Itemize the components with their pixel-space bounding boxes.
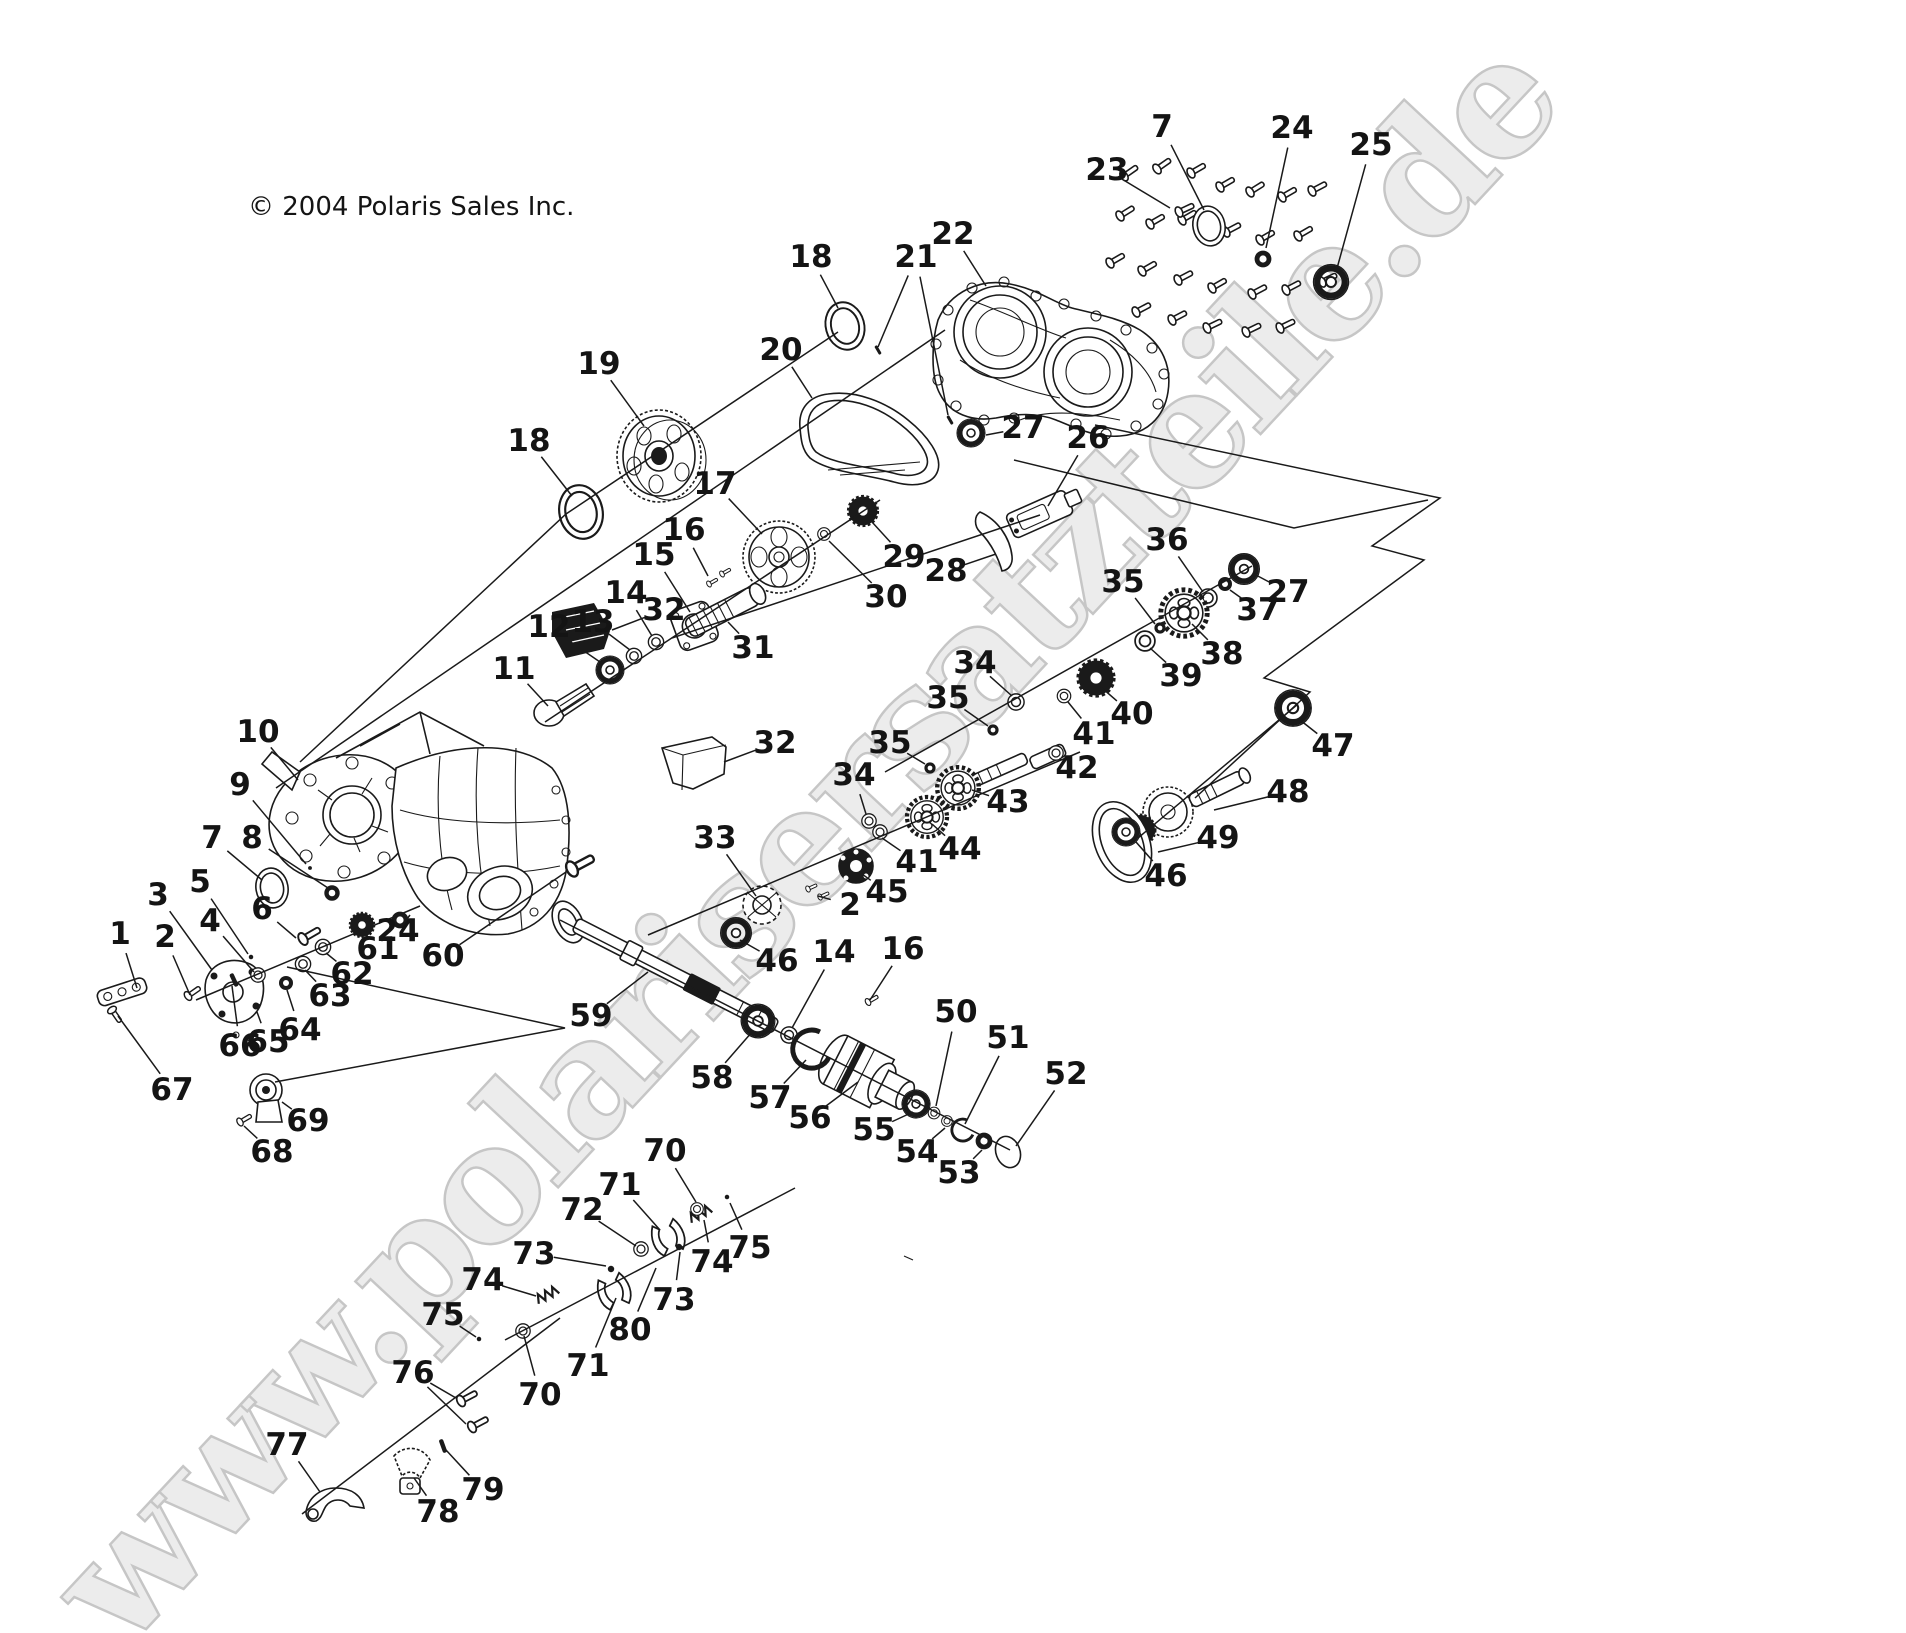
copyright-text: © 2004 Polaris Sales Inc. bbox=[248, 192, 574, 222]
label-leader-73 bbox=[554, 1257, 606, 1266]
dot-part bbox=[477, 1337, 481, 1341]
label-leader-74 bbox=[704, 1220, 708, 1242]
part-label-78: 78 bbox=[416, 1494, 459, 1530]
part-label-46: 46 bbox=[755, 943, 798, 979]
label-leader-16 bbox=[693, 548, 708, 576]
part-label-75: 75 bbox=[421, 1297, 464, 1333]
part-label-70: 70 bbox=[643, 1133, 686, 1169]
washer-part bbox=[691, 1203, 704, 1216]
gearsolid-part bbox=[1079, 661, 1114, 696]
part-label-18: 18 bbox=[789, 239, 832, 275]
part-label-16: 16 bbox=[662, 512, 705, 548]
part-label-53: 53 bbox=[937, 1155, 980, 1191]
dot-part bbox=[608, 1266, 614, 1272]
washer-part bbox=[634, 1242, 648, 1256]
part-label-35: 35 bbox=[868, 725, 911, 761]
part-label-32: 32 bbox=[753, 725, 796, 761]
part-label-58: 58 bbox=[690, 1060, 733, 1096]
label-leader-67 bbox=[118, 1016, 160, 1074]
seal-part bbox=[554, 481, 607, 543]
label-leader-51 bbox=[965, 1056, 999, 1124]
part-label-7: 7 bbox=[201, 820, 223, 856]
diagram-line bbox=[1138, 704, 1298, 838]
part-label-56: 56 bbox=[788, 1100, 831, 1136]
pin-part bbox=[946, 415, 954, 425]
label-leader-16 bbox=[870, 966, 892, 1000]
label-leader-70 bbox=[675, 1168, 696, 1202]
part-label-7: 7 bbox=[1151, 109, 1173, 145]
label-leader-2 bbox=[173, 955, 190, 995]
part-label-51: 51 bbox=[986, 1020, 1029, 1056]
part-label-79: 79 bbox=[461, 1472, 504, 1508]
part-label-57: 57 bbox=[748, 1080, 791, 1116]
washer-part bbox=[648, 634, 663, 649]
nut-part bbox=[1154, 622, 1165, 633]
part-label-54: 54 bbox=[895, 1134, 938, 1170]
screw-part bbox=[864, 993, 880, 1006]
label-leader-30 bbox=[829, 541, 872, 583]
bolt-11-drawing bbox=[534, 684, 594, 726]
screw-part bbox=[455, 1387, 479, 1408]
part-label-52: 52 bbox=[1044, 1056, 1087, 1092]
screw-part bbox=[1214, 174, 1236, 193]
part-label-76: 76 bbox=[391, 1355, 434, 1391]
nut-part bbox=[924, 762, 935, 773]
part-label-11: 11 bbox=[492, 651, 535, 687]
part-label-36: 36 bbox=[1145, 522, 1188, 558]
bearing-part bbox=[1229, 554, 1260, 585]
part-label-55: 55 bbox=[852, 1112, 895, 1148]
part-label-5: 5 bbox=[189, 864, 211, 900]
screw-part bbox=[1104, 250, 1126, 269]
part-label-2: 2 bbox=[839, 887, 861, 923]
part-label-74: 74 bbox=[690, 1244, 733, 1280]
part-label-41: 41 bbox=[1072, 716, 1115, 752]
bearing-part bbox=[1112, 818, 1140, 846]
dot-part bbox=[308, 866, 312, 870]
part-label-6: 6 bbox=[251, 891, 273, 927]
label-leader-73 bbox=[676, 1252, 680, 1280]
part-label-26: 26 bbox=[1066, 420, 1109, 456]
nut-part bbox=[987, 724, 998, 735]
part-label-3: 3 bbox=[147, 877, 169, 913]
label-leader-48 bbox=[1214, 797, 1269, 810]
sector-78-drawing bbox=[394, 1448, 430, 1494]
part-label-70: 70 bbox=[518, 1377, 561, 1413]
screw-part bbox=[1172, 268, 1194, 287]
bracket-1-drawing bbox=[96, 977, 148, 1008]
nut-part bbox=[279, 976, 293, 990]
screw-part bbox=[719, 566, 732, 577]
part-label-16: 16 bbox=[881, 931, 924, 967]
part-label-19: 19 bbox=[577, 346, 620, 382]
part-label-80: 80 bbox=[608, 1312, 651, 1348]
spring-part bbox=[535, 1285, 560, 1303]
label-leader-18 bbox=[541, 457, 572, 496]
part-label-27: 27 bbox=[1266, 574, 1309, 610]
screw-part bbox=[1114, 203, 1136, 222]
label-leader-19 bbox=[611, 380, 644, 426]
part-label-1: 1 bbox=[109, 916, 131, 952]
bearing-part bbox=[1314, 265, 1349, 300]
part-label-49: 49 bbox=[1196, 820, 1239, 856]
gear-17-drawing bbox=[743, 521, 815, 593]
part-label-27: 27 bbox=[1001, 410, 1044, 446]
part-label-24: 24 bbox=[376, 913, 419, 949]
label-leader-7 bbox=[1171, 145, 1204, 210]
seal-part bbox=[820, 298, 870, 354]
part-label-12: 12 bbox=[527, 609, 570, 645]
part-label-44: 44 bbox=[938, 831, 981, 867]
label-leader-20 bbox=[792, 367, 812, 398]
label-leader-50 bbox=[936, 1032, 952, 1106]
part-label-73: 73 bbox=[512, 1236, 555, 1272]
label-leader-21 bbox=[878, 275, 908, 347]
part-label-22: 22 bbox=[931, 216, 974, 252]
part-label-72: 72 bbox=[560, 1192, 603, 1228]
part-label-46: 46 bbox=[1144, 858, 1187, 894]
part-label-40: 40 bbox=[1110, 696, 1153, 732]
part-label-71: 71 bbox=[598, 1167, 641, 1203]
part-label-74: 74 bbox=[461, 1262, 504, 1298]
disc-part bbox=[991, 1133, 1024, 1171]
part-label-71: 71 bbox=[566, 1348, 609, 1384]
part-label-38: 38 bbox=[1200, 636, 1243, 672]
part-label-34: 34 bbox=[953, 645, 996, 681]
washer-part bbox=[862, 814, 876, 828]
bearing-part bbox=[957, 419, 985, 447]
part-label-8: 8 bbox=[241, 820, 263, 856]
label-leader-32 bbox=[612, 617, 645, 630]
drive-belt-drawing bbox=[800, 393, 939, 484]
nut-part bbox=[1255, 251, 1272, 268]
part-label-50: 50 bbox=[934, 994, 977, 1030]
label-leader-65 bbox=[257, 1012, 261, 1023]
part-label-25: 25 bbox=[1349, 127, 1392, 163]
screw-part bbox=[706, 576, 719, 587]
part-label-30: 30 bbox=[864, 579, 907, 615]
part-label-45: 45 bbox=[865, 874, 908, 910]
part-label-77: 77 bbox=[265, 1427, 308, 1463]
foam-32b-drawing bbox=[662, 737, 726, 790]
part-label-2: 2 bbox=[154, 919, 176, 955]
label-leader-22 bbox=[964, 251, 986, 286]
dot-part bbox=[725, 1195, 729, 1199]
label-leader-71 bbox=[633, 1200, 660, 1230]
label-leader-6 bbox=[277, 922, 296, 938]
part-label-24: 24 bbox=[1270, 110, 1313, 146]
part-label-43: 43 bbox=[986, 784, 1029, 820]
part-label-35: 35 bbox=[1101, 564, 1144, 600]
label-leader-23 bbox=[1124, 180, 1170, 208]
screw-part bbox=[1244, 179, 1266, 198]
exploded-parts-diagram: www.polarisersatzteile.de © 2004 Polaris… bbox=[0, 0, 1906, 1633]
part-label-28: 28 bbox=[924, 553, 967, 589]
nut-part bbox=[976, 1133, 993, 1150]
part-label-31: 31 bbox=[731, 630, 774, 666]
gearcase-cover-drawing bbox=[931, 277, 1169, 439]
label-leader-11 bbox=[528, 684, 548, 706]
screw-part bbox=[1185, 160, 1207, 179]
part-label-69: 69 bbox=[286, 1103, 329, 1139]
part-label-18: 18 bbox=[507, 423, 550, 459]
dot-part bbox=[255, 1003, 260, 1008]
screw-part bbox=[1144, 211, 1166, 230]
part-label-39: 39 bbox=[1159, 658, 1202, 694]
part-label-48: 48 bbox=[1266, 774, 1309, 810]
label-leader-72 bbox=[599, 1221, 636, 1246]
part-label-32: 32 bbox=[642, 592, 685, 628]
screw-part bbox=[1130, 300, 1152, 319]
part-label-67: 67 bbox=[150, 1072, 193, 1108]
label-leader-17 bbox=[729, 499, 762, 534]
part-label-42: 42 bbox=[1055, 750, 1098, 786]
part-label-14: 14 bbox=[604, 575, 647, 611]
part-label-73: 73 bbox=[652, 1282, 695, 1318]
part-label-59: 59 bbox=[569, 998, 612, 1034]
part-label-29: 29 bbox=[882, 539, 925, 575]
washer-part bbox=[626, 648, 641, 663]
part-label-64: 64 bbox=[278, 1012, 321, 1048]
dot-part bbox=[249, 955, 253, 959]
part-label-33: 33 bbox=[693, 820, 736, 856]
part-label-75: 75 bbox=[728, 1230, 771, 1266]
part-label-17: 17 bbox=[693, 466, 736, 502]
part-label-10: 10 bbox=[236, 714, 279, 750]
part-label-60: 60 bbox=[421, 938, 464, 974]
part-label-23: 23 bbox=[1085, 152, 1128, 188]
part-label-9: 9 bbox=[229, 767, 251, 803]
washer-part bbox=[1135, 631, 1155, 651]
screw-part bbox=[1151, 155, 1173, 175]
parts-diagram-page: www.polarisersatzteile.de © 2004 Polaris… bbox=[0, 0, 1906, 1633]
tick-mark bbox=[904, 1256, 913, 1260]
part-label-68: 68 bbox=[250, 1134, 293, 1170]
label-leader-64 bbox=[287, 990, 294, 1011]
part-label-35: 35 bbox=[926, 680, 969, 716]
part-label-34: 34 bbox=[832, 757, 875, 793]
screw-part bbox=[1136, 258, 1158, 277]
part-label-20: 20 bbox=[759, 332, 802, 368]
washer-part bbox=[1057, 689, 1071, 703]
label-leader-49 bbox=[1158, 843, 1199, 852]
screw-part bbox=[466, 1413, 490, 1434]
part-label-47: 47 bbox=[1311, 728, 1354, 764]
label-leader-52 bbox=[1016, 1090, 1055, 1146]
label-leader-18 bbox=[820, 275, 838, 308]
fork-part bbox=[594, 1271, 635, 1312]
part-label-14: 14 bbox=[812, 934, 855, 970]
screw-part bbox=[235, 1112, 253, 1127]
